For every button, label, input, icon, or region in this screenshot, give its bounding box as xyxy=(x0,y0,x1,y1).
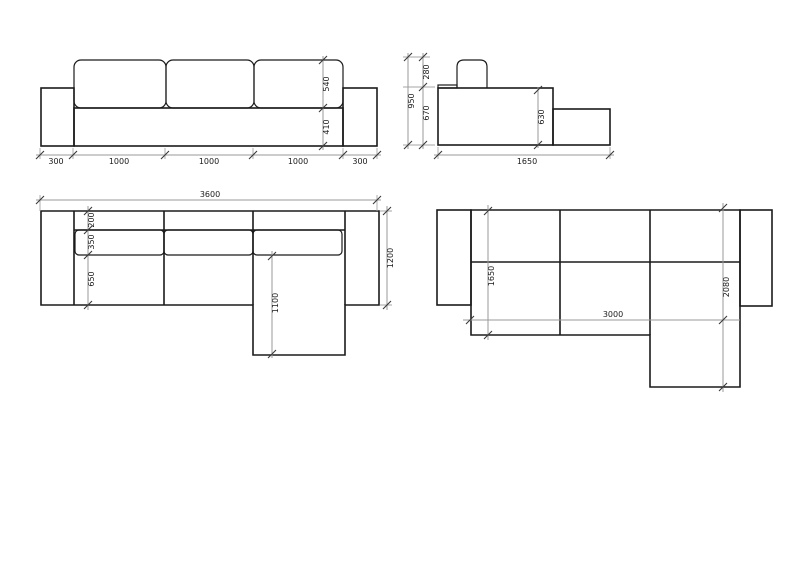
module-dim-inner-depth: 1650 xyxy=(487,266,496,286)
module-body-boundary xyxy=(471,210,740,387)
module-left-armrest xyxy=(437,210,471,305)
module-dim-inner-width: 3000 xyxy=(603,310,623,319)
dimension-ticks xyxy=(404,53,614,159)
side-main-body xyxy=(438,88,553,145)
plan-dim-back-depth: 200 xyxy=(87,212,96,227)
plan-back-cushion-2 xyxy=(164,230,253,255)
front-dim-module-1-width: 1000 xyxy=(109,157,129,166)
side-dim-right-body-height: 630 xyxy=(537,109,546,124)
front-back-cushion-1 xyxy=(74,60,166,108)
plan-dim-seat-depth: 650 xyxy=(87,271,96,286)
side-backrest-cushion xyxy=(457,60,487,88)
side-elevation-view: 280 950 670 630 1650 xyxy=(403,53,614,166)
plan-back-cushion-3 xyxy=(253,230,342,255)
side-dim-backrest-above-seat: 280 xyxy=(422,64,431,79)
side-chaise-low-section xyxy=(553,109,610,145)
front-dim-seat-height: 410 xyxy=(322,119,331,134)
side-dim-total-depth: 1650 xyxy=(517,157,537,166)
plan-dim-chaise-extension: 1100 xyxy=(271,293,280,313)
plan-dim-cushion-depth: 350 xyxy=(87,234,96,249)
dimension-ticks xyxy=(466,204,727,391)
plan-interior-dividers xyxy=(74,211,345,305)
front-back-cushion-2 xyxy=(166,60,254,108)
front-elevation-view: 300 1000 1000 1000 300 540 410 xyxy=(36,56,381,166)
module-dim-total-depth: 2080 xyxy=(722,277,731,297)
plan-dim-total-width: 3600 xyxy=(200,190,220,199)
front-dim-left-armrest-width: 300 xyxy=(48,157,63,166)
side-extension-lines xyxy=(403,57,610,159)
front-dim-module-2-width: 1000 xyxy=(199,157,219,166)
plan-dim-total-depth: 1200 xyxy=(386,248,395,268)
module-right-armrest xyxy=(740,210,772,306)
front-dim-module-3-width: 1000 xyxy=(288,157,308,166)
front-dim-right-armrest-width: 300 xyxy=(352,157,367,166)
module-plan-view: 1650 3000 2080 xyxy=(437,203,772,392)
side-dim-seat-to-floor: 670 xyxy=(422,105,431,120)
technical-drawing-canvas: 300 1000 1000 1000 300 540 410 280 950 6… xyxy=(0,0,800,562)
front-right-armrest xyxy=(343,88,377,146)
front-dim-back-cushion-height: 540 xyxy=(322,76,331,91)
front-seat-base xyxy=(74,108,343,146)
front-left-armrest xyxy=(41,88,74,146)
plan-view: 3600 200 350 650 1100 1200 xyxy=(36,190,395,358)
side-dim-total-height: 950 xyxy=(407,93,416,108)
side-back-ledge xyxy=(438,85,457,88)
